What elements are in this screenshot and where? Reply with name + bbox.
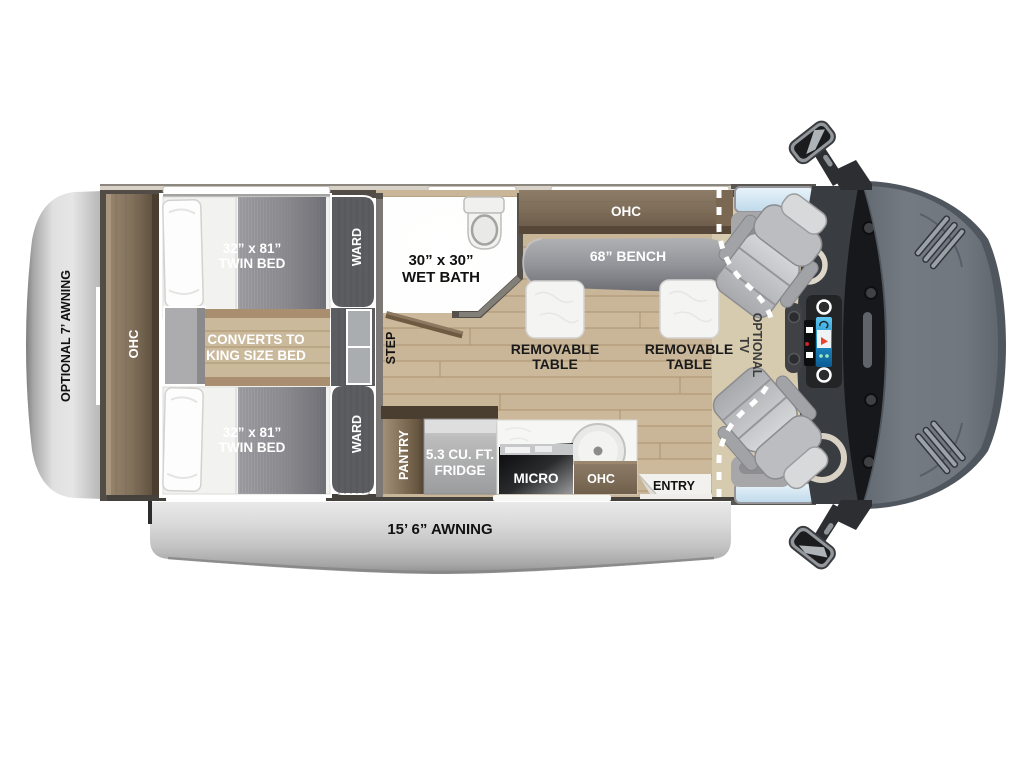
svg-text:15’ 6” AWNING: 15’ 6” AWNING: [387, 521, 492, 538]
svg-text:TABLE: TABLE: [666, 356, 712, 372]
svg-text:OHC: OHC: [611, 204, 641, 219]
svg-text:WET BATH: WET BATH: [402, 269, 480, 286]
svg-text:WARD: WARD: [350, 228, 364, 266]
svg-text:PANTRY: PANTRY: [397, 429, 411, 480]
svg-text:ENTRY: ENTRY: [653, 479, 696, 493]
svg-text:30” x 30”: 30” x 30”: [408, 252, 473, 269]
svg-text:CONVERTS TO: CONVERTS TO: [207, 332, 304, 347]
svg-text:KING SIZE BED: KING SIZE BED: [206, 348, 306, 363]
svg-text:OPTIONAL 7’ AWNING: OPTIONAL 7’ AWNING: [59, 270, 73, 402]
svg-text:FRIDGE: FRIDGE: [434, 463, 485, 478]
svg-text:OHC: OHC: [126, 329, 141, 359]
svg-text:TABLE: TABLE: [532, 356, 578, 372]
svg-text:TWIN BED: TWIN BED: [219, 440, 286, 455]
svg-text:STEP: STEP: [384, 332, 398, 365]
svg-text:TWIN BED: TWIN BED: [219, 256, 286, 271]
svg-text:32” x 81”: 32” x 81”: [223, 425, 282, 440]
svg-text:MICRO: MICRO: [514, 471, 559, 486]
svg-text:REMOVABLE: REMOVABLE: [511, 341, 599, 357]
svg-text:OHC: OHC: [587, 472, 615, 486]
svg-text:32” x 81”: 32” x 81”: [223, 241, 282, 256]
svg-text:68” BENCH: 68” BENCH: [590, 248, 666, 264]
svg-text:REMOVABLE: REMOVABLE: [645, 341, 733, 357]
svg-text:WARD: WARD: [350, 415, 364, 453]
svg-text:5.3 CU. FT.: 5.3 CU. FT.: [426, 447, 494, 462]
svg-text:TV: TV: [737, 337, 751, 354]
svg-text:OPTIONAL: OPTIONAL: [750, 313, 764, 378]
